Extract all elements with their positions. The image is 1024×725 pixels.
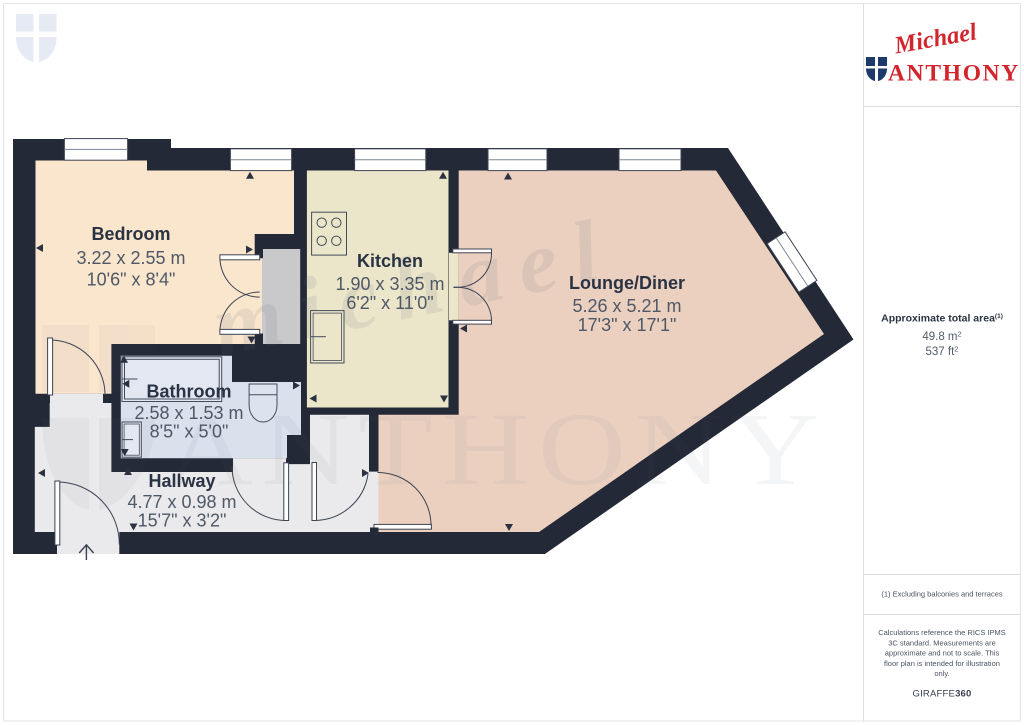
svg-text:Calculations reference the RIC: Calculations reference the RICS IPMS (878, 628, 1006, 637)
svg-text:17'3" x 17'1": 17'3" x 17'1" (578, 315, 677, 335)
svg-text:10'6" x 8'4": 10'6" x 8'4" (87, 270, 176, 290)
svg-text:only.: only. (934, 669, 949, 678)
svg-text:Kitchen: Kitchen (357, 251, 423, 271)
svg-text:Hallway: Hallway (148, 471, 215, 491)
svg-text:ANTHONY: ANTHONY (888, 61, 1020, 87)
svg-text:1.90 x 3.35 m: 1.90 x 3.35 m (335, 274, 444, 294)
svg-text:6'2" x 11'0": 6'2" x 11'0" (346, 293, 433, 313)
svg-text:Bedroom: Bedroom (91, 224, 170, 244)
svg-text:Lounge/Diner: Lounge/Diner (569, 273, 685, 293)
svg-text:537 ft2: 537 ft2 (926, 345, 959, 359)
svg-text:8'5" x 5'0": 8'5" x 5'0" (150, 422, 229, 442)
svg-text:floor plan is intended for ill: floor plan is intended for illustration (884, 659, 1000, 668)
svg-text:15'7" x 3'2": 15'7" x 3'2" (138, 511, 227, 531)
svg-text:GIRAFFE360: GIRAFFE360 (912, 689, 971, 700)
svg-text:3.22 x 2.55 m: 3.22 x 2.55 m (76, 248, 185, 268)
svg-text:3C standard. Measurements are: 3C standard. Measurements are (888, 638, 996, 647)
svg-text:Bathroom: Bathroom (147, 382, 232, 402)
svg-text:Approximate total area(1): Approximate total area(1) (881, 313, 1003, 325)
svg-text:2.58 x 1.53 m: 2.58 x 1.53 m (134, 403, 243, 423)
svg-text:5.26 x 5.21 m: 5.26 x 5.21 m (572, 296, 681, 316)
svg-text:(1) Excluding balconies and te: (1) Excluding balconies and terraces (881, 590, 1003, 599)
svg-text:49.8 m2: 49.8 m2 (922, 330, 961, 344)
svg-text:approximate and not to scale.: approximate and not to scale. This (885, 649, 1000, 658)
svg-text:4.77 x 0.98 m: 4.77 x 0.98 m (127, 492, 236, 512)
